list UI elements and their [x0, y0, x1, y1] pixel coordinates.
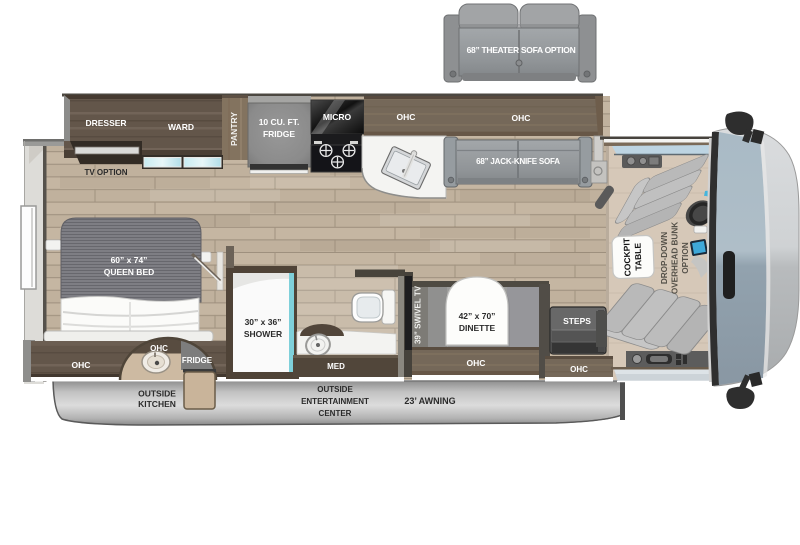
- svg-text:MED: MED: [327, 362, 345, 371]
- svg-text:OUTSIDE: OUTSIDE: [138, 389, 176, 399]
- svg-text:DROP-DOWN: DROP-DOWN: [660, 232, 669, 284]
- svg-text:30” x 36”: 30” x 36”: [245, 317, 282, 327]
- svg-text:COCKPIT: COCKPIT: [621, 237, 632, 276]
- svg-text:FRIDGE: FRIDGE: [182, 356, 213, 365]
- svg-text:PANTRY: PANTRY: [229, 112, 239, 146]
- svg-text:60” x 74”: 60” x 74”: [111, 255, 148, 265]
- svg-text:OHC: OHC: [397, 112, 416, 122]
- svg-text:DRESSER: DRESSER: [85, 118, 126, 128]
- svg-text:OHC: OHC: [72, 360, 91, 370]
- svg-text:42” x 70”: 42” x 70”: [459, 311, 496, 321]
- svg-text:39” SWIVEL TV: 39” SWIVEL TV: [414, 285, 423, 344]
- svg-text:TV OPTION: TV OPTION: [84, 168, 127, 177]
- svg-text:68” JACK-KNIFE SOFA: 68” JACK-KNIFE SOFA: [476, 157, 560, 166]
- svg-text:OUTSIDE: OUTSIDE: [317, 385, 353, 394]
- svg-text:STEPS: STEPS: [563, 316, 591, 326]
- svg-text:23’ AWNING: 23’ AWNING: [404, 396, 455, 406]
- svg-text:TABLE: TABLE: [633, 242, 644, 270]
- svg-text:ENTERTAINMENT: ENTERTAINMENT: [301, 397, 369, 406]
- svg-text:OHC: OHC: [570, 365, 588, 374]
- svg-text:QUEEN BED: QUEEN BED: [104, 267, 155, 277]
- svg-text:FRIDGE: FRIDGE: [263, 129, 295, 139]
- svg-text:SHOWER: SHOWER: [244, 329, 282, 339]
- svg-text:OPTION: OPTION: [681, 242, 690, 273]
- svg-text:OHC: OHC: [150, 344, 168, 353]
- svg-text:OHC: OHC: [467, 358, 486, 368]
- svg-text:MICRO: MICRO: [323, 112, 352, 122]
- svg-text:OVERHEAD BUNK: OVERHEAD BUNK: [671, 222, 680, 294]
- svg-text:WARD: WARD: [168, 122, 194, 132]
- svg-text:KITCHEN: KITCHEN: [138, 399, 176, 409]
- svg-text:CENTER: CENTER: [319, 409, 352, 418]
- svg-text:DINETTE: DINETTE: [459, 323, 496, 333]
- svg-text:10 CU. FT.: 10 CU. FT.: [259, 117, 300, 127]
- svg-text:OHC: OHC: [512, 113, 531, 123]
- svg-text:68” THEATER SOFA OPTION: 68” THEATER SOFA OPTION: [467, 45, 576, 55]
